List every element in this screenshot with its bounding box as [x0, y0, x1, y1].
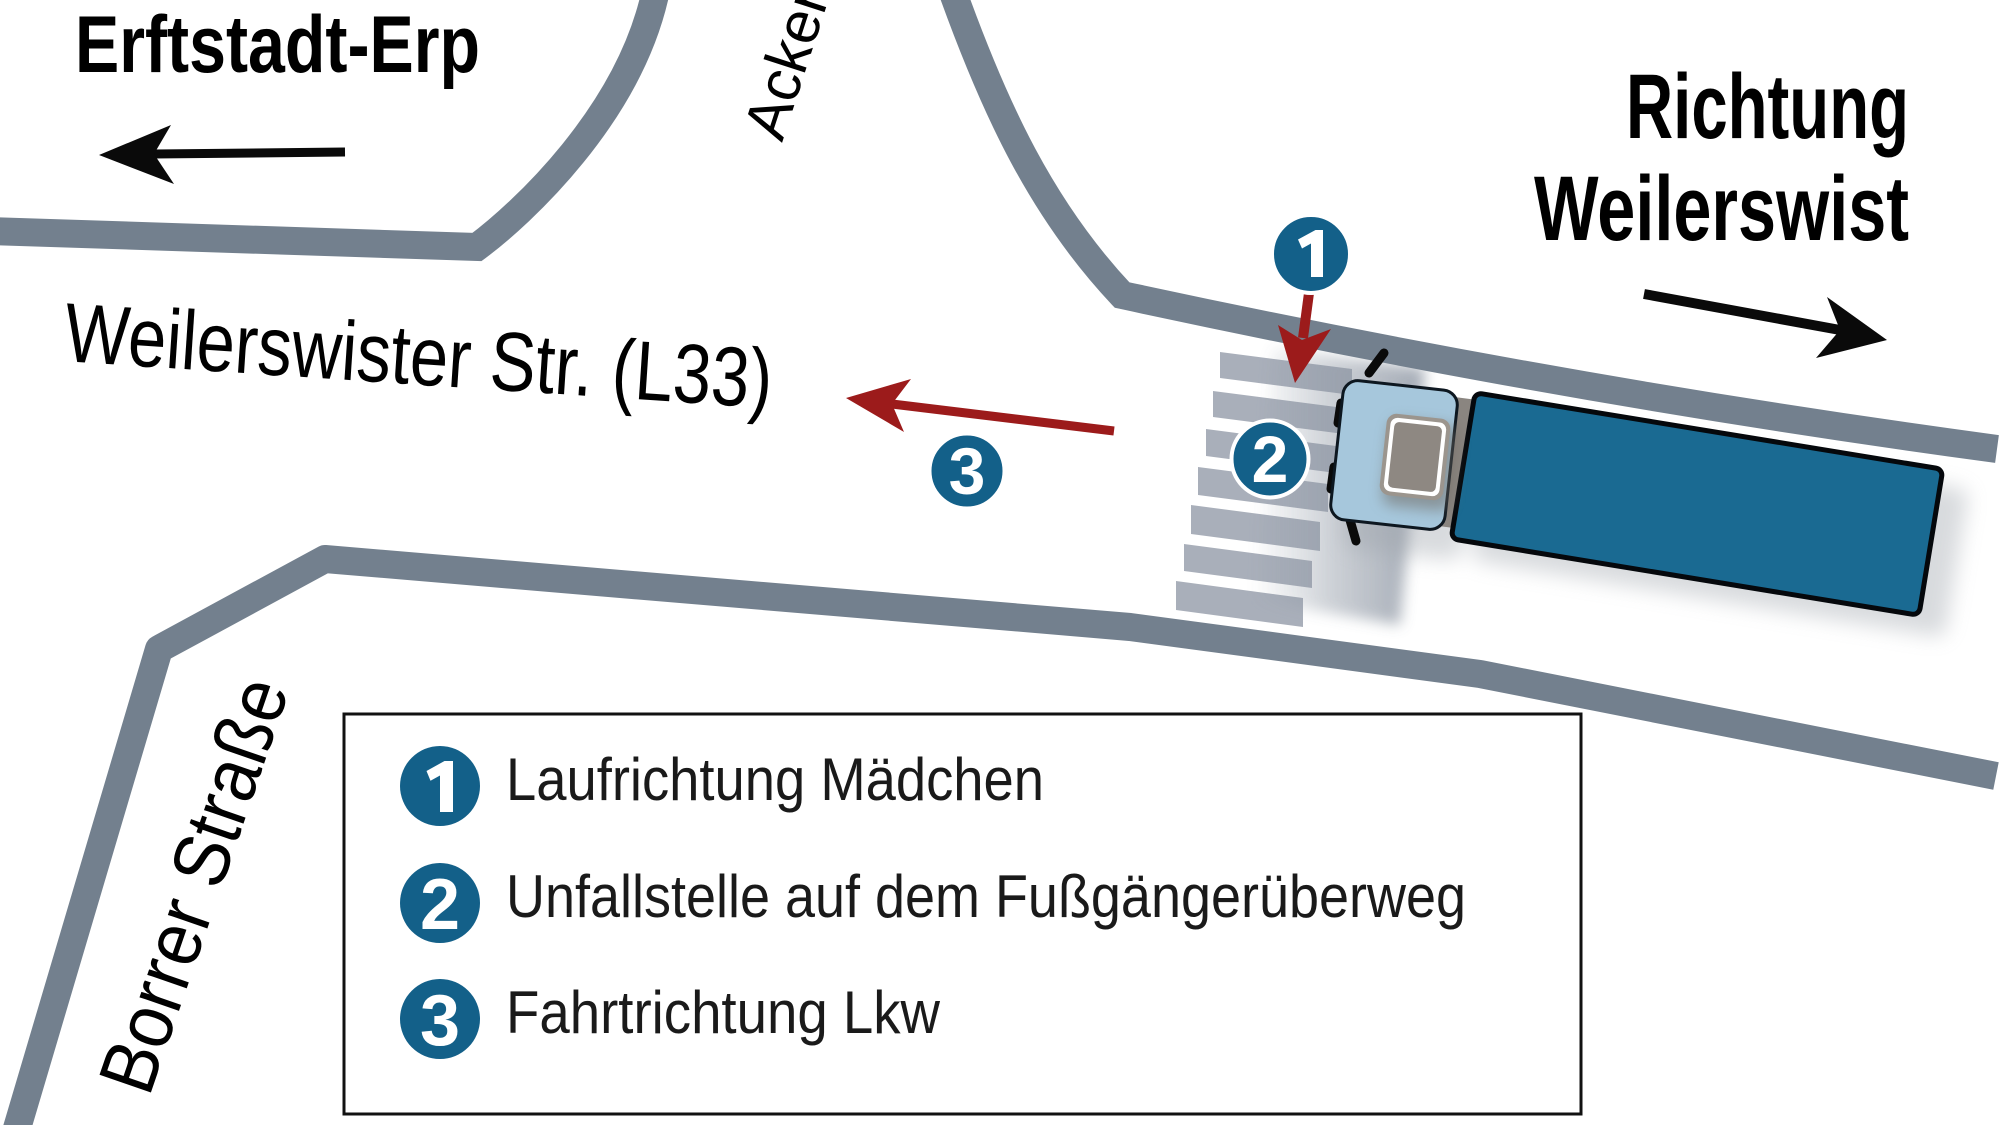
- svg-text:Laufrichtung Mädchen: Laufrichtung Mädchen: [506, 746, 1044, 813]
- svg-text:Richtung: Richtung: [1626, 56, 1909, 158]
- svg-text:3: 3: [420, 981, 460, 1061]
- svg-text:Fahrtrichtung Lkw: Fahrtrichtung Lkw: [506, 979, 941, 1046]
- svg-text:Erftstadt-Erp: Erftstadt-Erp: [75, 0, 480, 90]
- svg-text:Unfallstelle auf dem Fußgänger: Unfallstelle auf dem Fußgängerüberweg: [506, 863, 1466, 930]
- svg-text:3: 3: [949, 434, 986, 508]
- svg-text:2: 2: [1252, 422, 1289, 496]
- svg-text:Weilerswist: Weilerswist: [1534, 158, 1909, 260]
- svg-text:2: 2: [420, 865, 460, 945]
